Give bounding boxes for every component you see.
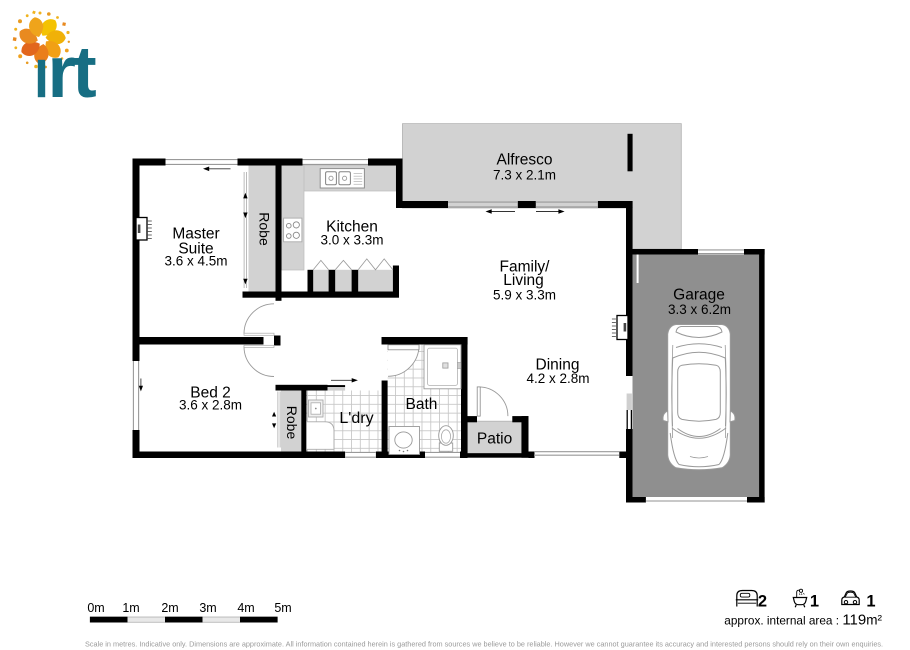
svg-text:Living: Living [503,272,544,289]
svg-text:Robe: Robe [284,406,300,440]
svg-text:5m: 5m [274,601,291,615]
svg-text:approx. internal area : 119m²: approx. internal area : 119m² [724,612,882,629]
svg-text:5.9 x 3.3m: 5.9 x 3.3m [493,288,556,303]
svg-text:1: 1 [866,593,875,611]
svg-text:Patio: Patio [477,431,512,448]
svg-text:rt: rt [48,32,97,113]
svg-text:4.2 x 2.8m: 4.2 x 2.8m [526,371,589,386]
svg-text:3.6 x 2.8m: 3.6 x 2.8m [179,398,242,413]
svg-text:2m: 2m [161,601,178,615]
svg-text:Scale in metres. Indicative on: Scale in metres. Indicative only. Dimens… [85,640,883,649]
svg-text:4m: 4m [237,601,254,615]
svg-text:3.6 x 4.5m: 3.6 x 4.5m [164,254,227,269]
svg-text:1: 1 [810,593,819,611]
svg-text:3m: 3m [199,601,216,615]
svg-text:3.3 x 6.2m: 3.3 x 6.2m [668,302,731,317]
svg-text:Garage: Garage [673,287,725,304]
svg-text:7.3 x 2.1m: 7.3 x 2.1m [493,168,556,183]
svg-text:Bath: Bath [406,396,438,413]
svg-text:Robe: Robe [257,212,273,246]
svg-text:2: 2 [758,593,767,611]
svg-text:3.0 x 3.3m: 3.0 x 3.3m [320,233,383,248]
svg-text:L'dry: L'dry [339,410,373,427]
svg-text:Alfresco: Alfresco [497,152,553,169]
svg-text:0m: 0m [87,601,104,615]
svg-text:1m: 1m [122,601,139,615]
